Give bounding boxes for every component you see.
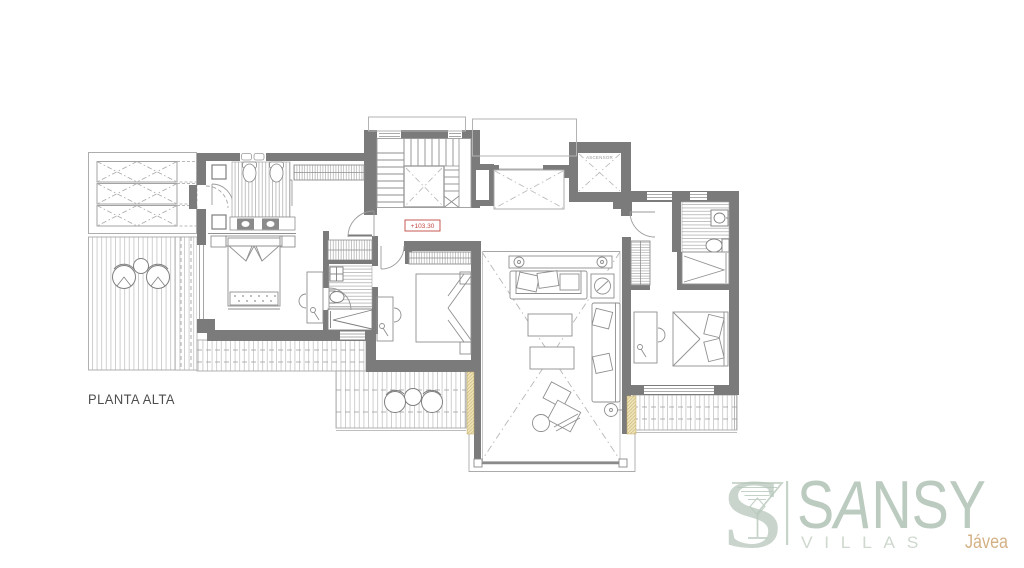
- svg-text:S: S: [721, 459, 785, 568]
- svg-text:Jávea: Jávea: [965, 532, 1008, 553]
- svg-text:ASCENSOR: ASCENSOR: [586, 155, 613, 160]
- svg-text:+103.30: +103.30: [411, 223, 435, 230]
- svg-text:VILLAS: VILLAS: [801, 534, 930, 552]
- svg-text:PLANTA ALTA: PLANTA ALTA: [88, 392, 175, 407]
- svg-text:SANSY: SANSY: [797, 467, 986, 543]
